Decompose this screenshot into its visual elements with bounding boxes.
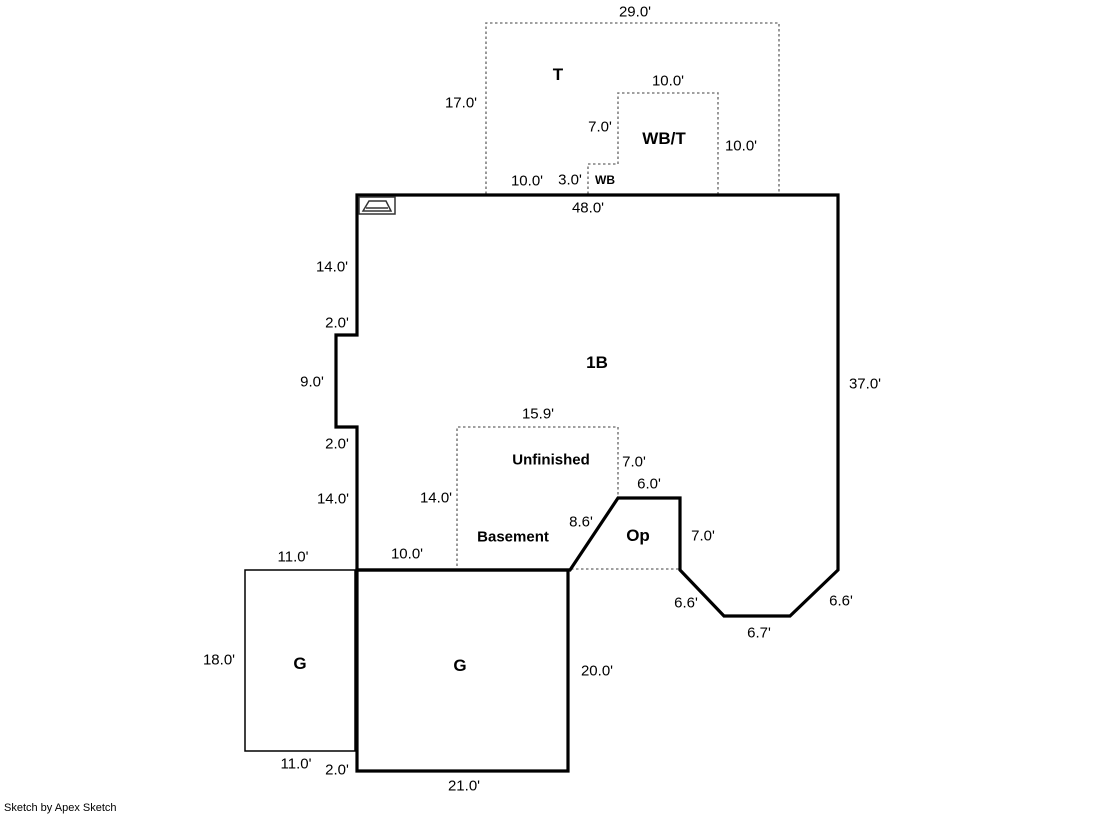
- dim-t-width: 29.0': [619, 4, 651, 21]
- dim-basement-width: 15.9': [522, 406, 554, 423]
- dim-jog-top: 2.0': [325, 315, 349, 332]
- dim-t-bottom: 10.0': [511, 173, 543, 190]
- dim-wb-width: 3.0': [558, 172, 582, 189]
- floor-plan-sketch: 29.0'T17.0'10.0'7.0'WB/T10.0'10.0'3.0'WB…: [0, 0, 1119, 821]
- area-wbt: WB/T: [642, 129, 685, 149]
- dim-t-height: 17.0': [445, 95, 477, 112]
- dim-bottom-wall-seg: 10.0': [391, 546, 423, 563]
- dim-op-diagonal: 8.6': [569, 514, 593, 531]
- area-open-porch: Op: [626, 526, 650, 546]
- area-garage-main: G: [453, 656, 466, 676]
- dim-garage-left-side: 18.0': [203, 652, 235, 669]
- area-wb: WB: [595, 173, 615, 187]
- dim-garage-left-bottom: 11.0': [281, 756, 312, 773]
- dim-op-top: 6.0': [637, 476, 661, 493]
- sketch-credit: Sketch by Apex Sketch: [4, 802, 117, 814]
- dim-top-wall: 48.0': [572, 200, 604, 217]
- basement-dashed-outline: [457, 427, 618, 571]
- area-garage-left: G: [293, 654, 306, 674]
- dim-left-lower: 14.0': [317, 491, 349, 508]
- terrace-dashed-outline: [486, 23, 779, 194]
- dim-bay-right: 6.6': [829, 593, 853, 610]
- dim-left-upper: 14.0': [316, 259, 348, 276]
- dim-wbt-right: 10.0': [725, 138, 757, 155]
- dim-jog-side: 9.0': [300, 374, 324, 391]
- dim-basement-right: 7.0': [622, 454, 646, 471]
- floor-plan-drawing: [0, 0, 1119, 821]
- area-terrace: T: [553, 65, 563, 85]
- dim-garage-main-right: 20.0': [581, 663, 613, 680]
- dim-op-right: 7.0': [691, 528, 715, 545]
- area-first-floor: 1B: [586, 353, 608, 373]
- area-basement-line1: Unfinished: [512, 452, 590, 469]
- area-basement-line2: Basement: [477, 529, 549, 546]
- dim-wbt-width: 10.0': [652, 73, 684, 90]
- dim-garage-left-top: 11.0': [278, 549, 309, 566]
- dim-bay-bottom: 6.7': [747, 625, 771, 642]
- dim-jog-bottom: 2.0': [325, 436, 349, 453]
- dim-garage-main-bottom: 21.0': [448, 778, 480, 795]
- fireplace-icon: [359, 197, 395, 214]
- dim-right-wall: 37.0': [849, 376, 881, 393]
- dim-garage-main-offset: 2.0': [325, 762, 349, 779]
- dim-wbt-left: 7.0': [588, 119, 612, 136]
- dim-basement-left: 14.0': [420, 490, 452, 507]
- dim-bay-left: 6.6': [674, 595, 698, 612]
